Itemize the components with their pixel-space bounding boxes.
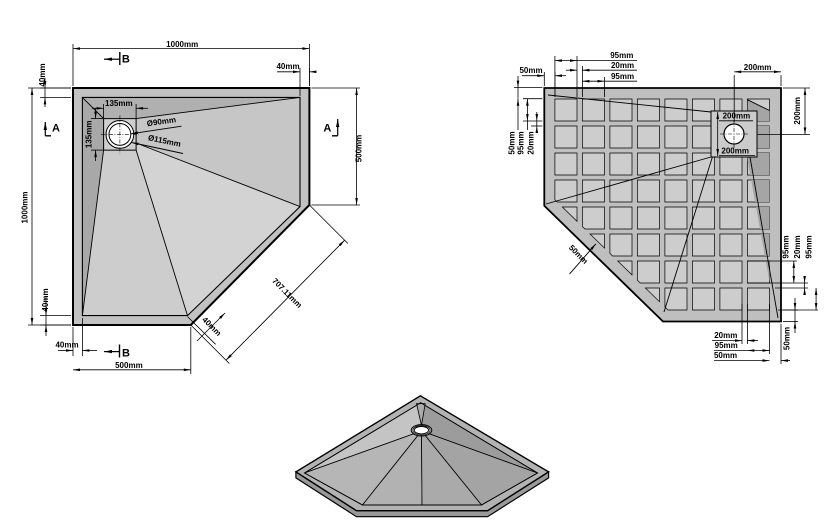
svg-text:95mm: 95mm: [517, 131, 526, 154]
svg-text:200mm: 200mm: [723, 112, 751, 121]
svg-text:20mm: 20mm: [714, 331, 737, 340]
svg-text:50mm: 50mm: [508, 131, 517, 154]
svg-text:1000mm: 1000mm: [166, 40, 198, 49]
svg-text:40mm: 40mm: [41, 288, 50, 311]
svg-text:135mm: 135mm: [84, 121, 93, 149]
svg-text:20mm: 20mm: [793, 235, 802, 258]
svg-text:95mm: 95mm: [805, 235, 814, 258]
svg-text:200mm: 200mm: [721, 147, 749, 156]
svg-text:95mm: 95mm: [611, 72, 634, 81]
svg-text:500mm: 500mm: [115, 361, 143, 370]
svg-text:50mm: 50mm: [714, 351, 737, 360]
svg-text:95mm: 95mm: [610, 51, 633, 60]
svg-text:B: B: [122, 347, 130, 359]
svg-text:135mm: 135mm: [105, 99, 133, 108]
svg-text:95mm: 95mm: [781, 235, 790, 258]
svg-text:B: B: [122, 54, 130, 66]
svg-text:40mm: 40mm: [276, 62, 299, 71]
svg-text:40mm: 40mm: [38, 63, 47, 86]
svg-text:500mm: 500mm: [355, 135, 364, 163]
svg-text:200mm: 200mm: [793, 97, 802, 125]
svg-text:50mm: 50mm: [783, 327, 792, 350]
svg-text:A: A: [323, 122, 331, 134]
svg-text:95mm: 95mm: [715, 341, 738, 350]
svg-text:1000mm: 1000mm: [21, 191, 30, 223]
svg-text:200mm: 200mm: [744, 63, 772, 72]
svg-text:20mm: 20mm: [611, 61, 634, 70]
svg-text:50mm: 50mm: [519, 66, 542, 75]
svg-text:20mm: 20mm: [526, 131, 535, 154]
svg-text:A: A: [52, 123, 60, 135]
svg-text:40mm: 40mm: [55, 341, 78, 350]
